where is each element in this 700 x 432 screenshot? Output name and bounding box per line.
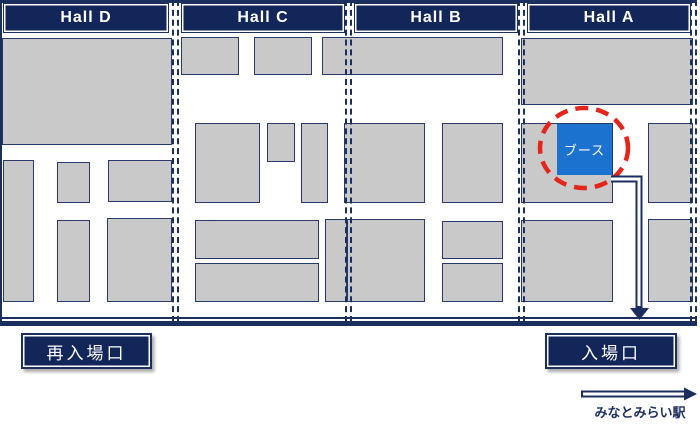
highlight-booth: ブース: [557, 124, 612, 175]
hall-separator-b-a: [518, 0, 525, 322]
booth-12: [301, 123, 328, 203]
hall-d-label: Hall D: [60, 9, 111, 26]
booth-8: [254, 37, 312, 75]
booth-16: [344, 123, 425, 203]
booth-1: [2, 38, 172, 145]
hall-band-a: Hall A: [527, 3, 691, 33]
hall-band-b: Hall B: [354, 3, 518, 33]
booth-13: [195, 220, 319, 259]
booth-15: [325, 219, 347, 302]
booth-24: [521, 220, 613, 302]
booth-20: [442, 263, 503, 302]
booth-25: [648, 219, 693, 302]
hall-band-d: Hall D: [3, 3, 169, 33]
booth-2: [3, 160, 34, 302]
booth-14: [195, 263, 319, 302]
hall-separator-d-c: [172, 0, 179, 322]
hall-separator-c-b: [345, 0, 352, 322]
station-label-text: みなとみらい駅: [594, 405, 685, 420]
booth-11: [267, 123, 295, 162]
station-label: みなとみらい駅: [578, 402, 700, 418]
hall-c-label: Hall C: [237, 9, 288, 26]
booth-23: [648, 123, 693, 203]
booth-6: [107, 218, 172, 302]
booth-5: [108, 160, 172, 202]
route-arrow: [611, 179, 649, 320]
reentry-label-text: 再入場口: [47, 339, 127, 364]
hall-b-label: Hall B: [410, 9, 461, 26]
highlight-booth-label: ブース: [564, 140, 605, 159]
entry-label-text: 入場口: [581, 339, 641, 364]
booth-18: [347, 219, 425, 302]
reentry-label: 再入場口: [21, 333, 152, 369]
booth-7: [181, 37, 239, 75]
booth-19: [442, 221, 503, 259]
booth-17: [442, 123, 503, 203]
map-right-border: [690, 0, 697, 322]
booth-10: [195, 123, 260, 203]
venue-map: Hall D Hall C Hall B Hall A ブース 再入場口 入場口…: [0, 0, 700, 432]
booth-21: [521, 38, 693, 105]
entry-label: 入場口: [545, 333, 677, 369]
hall-a-label: Hall A: [584, 9, 635, 26]
hall-band-c: Hall C: [181, 3, 345, 33]
booth-3: [57, 162, 90, 203]
map-left-border: [0, 0, 2, 322]
booth-4: [57, 220, 90, 302]
station-arrow: [581, 388, 697, 401]
